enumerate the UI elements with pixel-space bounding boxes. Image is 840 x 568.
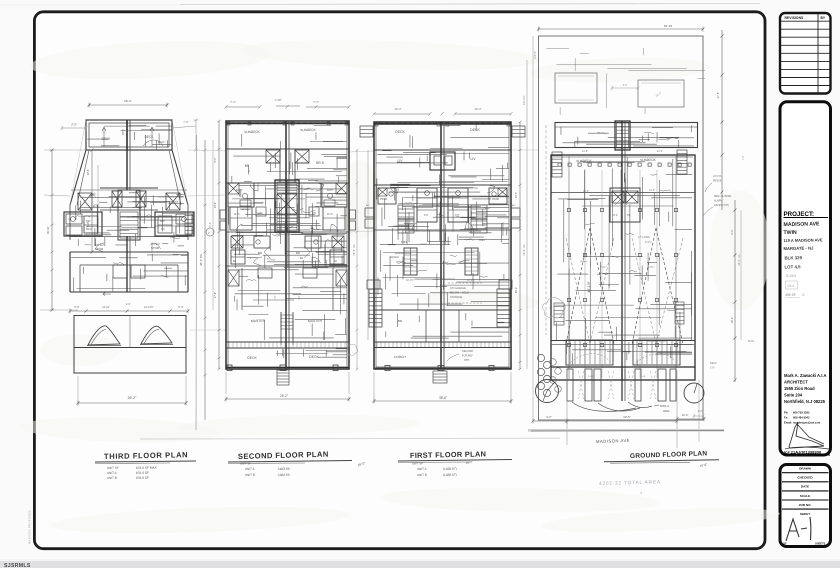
svg-text:SCALE: SCALE bbox=[800, 494, 811, 498]
svg-text:26'-2": 26'-2" bbox=[280, 394, 288, 398]
svg-text:7'-3": 7'-3" bbox=[94, 192, 97, 197]
svg-text:13'-6": 13'-6" bbox=[214, 202, 217, 208]
svg-text:MADISON AVE: MADISON AVE bbox=[783, 221, 820, 228]
svg-text:LOT 4,5: LOT 4,5 bbox=[784, 264, 801, 269]
svg-text:7'-7": 7'-7" bbox=[71, 122, 77, 126]
svg-text:DRAWN: DRAWN bbox=[799, 467, 811, 471]
svg-text:DIN: DIN bbox=[479, 238, 484, 242]
svg-text:9'-6¾": 9'-6¾" bbox=[648, 266, 655, 269]
svg-text:UNIT A: UNIT A bbox=[417, 467, 427, 471]
svg-text:Ph:: Ph: bbox=[784, 411, 788, 415]
svg-text:TWIN: TWIN bbox=[783, 230, 797, 236]
svg-text:Northfield, N.J 08225: Northfield, N.J 08225 bbox=[784, 399, 826, 404]
svg-text:W.I.C: W.I.C bbox=[234, 213, 240, 216]
svg-text:32'-5": 32'-5" bbox=[623, 415, 631, 419]
svg-text:SUNDECK: SUNDECK bbox=[300, 128, 317, 132]
svg-text:UNIT SF: UNIT SF bbox=[240, 461, 251, 465]
svg-text:ARCHITECT: ARCHITECT bbox=[784, 380, 808, 385]
svg-text:W.I.C: W.I.C bbox=[327, 213, 333, 216]
svg-text:1'-6": 1'-6" bbox=[275, 295, 277, 300]
svg-text:DATE: DATE bbox=[801, 485, 809, 489]
svg-text:CHECKED: CHECKED bbox=[797, 476, 813, 480]
svg-text:JOB NO.: JOB NO. bbox=[799, 503, 812, 507]
svg-text:SJSRMLS: SJSRMLS bbox=[4, 563, 31, 568]
svg-text:19'-1½": 19'-1½" bbox=[406, 278, 415, 282]
svg-text:5'-6": 5'-6" bbox=[75, 306, 80, 309]
svg-text:STOR: STOR bbox=[151, 246, 160, 250]
svg-text:14'-6": 14'-6" bbox=[582, 150, 588, 153]
svg-text:C/O GARAGE: C/O GARAGE bbox=[450, 287, 466, 290]
svg-text:FIRST FLOOR PLAN: FIRST FLOOR PLAN bbox=[410, 449, 486, 460]
svg-text:27'-6": 27'-6" bbox=[716, 92, 720, 99]
svg-text:SECOND: SECOND bbox=[462, 349, 473, 353]
svg-text:58'-8" OA: 58'-8" OA bbox=[522, 244, 526, 255]
svg-text:12'-11½": 12'-11½" bbox=[144, 305, 154, 309]
svg-text:UNIT SF: UNIT SF bbox=[107, 466, 119, 470]
svg-text:1'-6": 1'-6" bbox=[698, 410, 703, 413]
svg-text:(1498.67): (1498.67) bbox=[443, 467, 457, 471]
svg-text:5,254: 5,254 bbox=[786, 273, 797, 278]
svg-text:1555 Zion Road: 1555 Zion Road bbox=[784, 386, 815, 391]
svg-text:Lic# 21AJ(0)1338300: Lic# 21AJ(0)1338300 bbox=[782, 450, 822, 455]
svg-text:1'-6": 1'-6" bbox=[710, 367, 715, 370]
svg-text:456 SF: 456 SF bbox=[785, 293, 796, 297]
svg-text:5'-4": 5'-4" bbox=[179, 306, 184, 309]
svg-text:678.8 SF MAX: 678.8 SF MAX bbox=[136, 466, 158, 470]
svg-text:O: O bbox=[802, 293, 805, 297]
svg-text:STORAGE: STORAGE bbox=[450, 296, 463, 299]
svg-text:7'-1": 7'-1" bbox=[230, 100, 236, 104]
svg-text:SUNDECK: SUNDECK bbox=[640, 158, 657, 162]
svg-text:58'-8" OA: 58'-8" OA bbox=[352, 244, 356, 255]
svg-text:6'-0": 6'-0" bbox=[730, 229, 734, 234]
svg-text:2.0 VYL: 2.0 VYL bbox=[713, 175, 723, 178]
svg-text:ALARM: ALARM bbox=[714, 200, 722, 203]
svg-text:BA: BA bbox=[233, 260, 237, 263]
svg-text:17' LOAD: 17' LOAD bbox=[638, 235, 650, 239]
svg-text:DECK: DECK bbox=[710, 362, 717, 365]
svg-text:DIN: DIN bbox=[401, 240, 406, 244]
svg-text:18'-0": 18'-0" bbox=[730, 317, 734, 324]
svg-text:UNIT A: UNIT A bbox=[245, 467, 255, 471]
svg-text:36″H: 36″H bbox=[464, 359, 470, 362]
svg-text:12'-11": 12'-11" bbox=[102, 306, 110, 309]
svg-text:UNIT A: UNIT A bbox=[107, 471, 117, 475]
svg-text:SHEET: SHEET bbox=[800, 512, 810, 516]
svg-text:50'-93: 50'-93 bbox=[664, 24, 673, 28]
svg-text:19'-1½": 19'-1½" bbox=[467, 278, 476, 282]
svg-text:9'x18': 9'x18' bbox=[640, 376, 646, 378]
svg-text:678.0 SF: 678.0 SF bbox=[136, 471, 149, 475]
svg-text:26'-2": 26'-2" bbox=[128, 396, 137, 400]
svg-text:PROJECT:: PROJECT: bbox=[784, 211, 815, 218]
svg-text:7'-10": 7'-10" bbox=[274, 98, 281, 102]
svg-text:BR B: BR B bbox=[316, 161, 323, 165]
svg-text:1'-6": 1'-6" bbox=[299, 295, 301, 300]
svg-text:9'-2": 9'-2" bbox=[214, 157, 217, 162]
svg-text:19-4: 19-4 bbox=[787, 284, 794, 288]
svg-text:DECK: DECK bbox=[247, 356, 257, 360]
svg-text:UNIT SF: UNIT SF bbox=[412, 461, 423, 465]
svg-text:45'-10": 45'-10" bbox=[46, 226, 50, 234]
svg-text:PWDR: PWDR bbox=[380, 199, 387, 201]
svg-text:1486.69: 1486.69 bbox=[278, 473, 290, 477]
svg-text:119 A MADISON AVE: 119 A MADISON AVE bbox=[783, 237, 822, 243]
svg-text:FENCE: FENCE bbox=[713, 180, 722, 183]
svg-text:115'-0½": 115'-0½" bbox=[522, 95, 526, 105]
svg-text:7'-1": 7'-1" bbox=[313, 100, 319, 104]
svg-text:FLR ABV: FLR ABV bbox=[462, 354, 473, 358]
svg-text:PARK-G: PARK-G bbox=[660, 405, 669, 408]
svg-text:PWDR: PWDR bbox=[492, 199, 499, 201]
svg-text:DECK: DECK bbox=[395, 130, 405, 134]
svg-text:PORCH: PORCH bbox=[394, 355, 406, 359]
svg-text:Email:: Email: bbox=[784, 421, 792, 425]
svg-text:70'-6": 70'-6" bbox=[208, 222, 212, 229]
svg-text:Fx:: Fx: bbox=[784, 416, 788, 420]
svg-text:17'-8": 17'-8" bbox=[214, 292, 217, 298]
svg-text:AREA: AREA bbox=[663, 410, 670, 413]
svg-text:1483.69: 1483.69 bbox=[278, 467, 290, 471]
svg-text:SELF CLOSING: SELF CLOSING bbox=[714, 195, 732, 198]
svg-text:48'-4" OA: 48'-4" OA bbox=[199, 254, 203, 266]
svg-text:LIV: LIV bbox=[470, 157, 476, 161]
svg-text:9'-6¾": 9'-6¾" bbox=[600, 266, 607, 269]
svg-text:4: 4 bbox=[640, 491, 642, 495]
svg-text:9'-0": 9'-0" bbox=[623, 85, 628, 87]
svg-text:678.0 SF: 678.0 SF bbox=[136, 476, 149, 480]
svg-text:13'-0": 13'-0" bbox=[682, 413, 689, 417]
svg-text:KIT: KIT bbox=[424, 213, 428, 217]
svg-text:REVISIONS: REVISIONS bbox=[785, 16, 805, 20]
svg-text:18'-6": 18'-6" bbox=[86, 169, 90, 176]
svg-text:GATES (TYP): GATES (TYP) bbox=[714, 204, 729, 207]
svg-text:BY: BY bbox=[821, 16, 826, 20]
svg-text:BLDG: BLDG bbox=[748, 341, 754, 343]
svg-text:38'-6": 38'-6" bbox=[439, 396, 447, 400]
svg-text:O.S.: O.S. bbox=[613, 214, 618, 217]
svg-text:9'-0": 9'-0" bbox=[546, 415, 551, 419]
svg-text:SHEETS: SHEETS bbox=[815, 542, 826, 546]
svg-text:BR: BR bbox=[245, 164, 250, 168]
svg-text:1'-4": 1'-4" bbox=[126, 303, 131, 306]
svg-text:36'-2": 36'-2" bbox=[515, 287, 518, 293]
svg-text:12'-4": 12'-4" bbox=[394, 107, 401, 111]
svg-text:14'-6": 14'-6" bbox=[657, 150, 663, 153]
svg-text:UNIT B: UNIT B bbox=[245, 473, 255, 477]
svg-text:(1486.67): (1486.67) bbox=[443, 473, 457, 477]
svg-text:17'-1": 17'-1" bbox=[584, 250, 587, 256]
svg-text:1'-0": 1'-0" bbox=[743, 155, 745, 160]
svg-text:9'-8": 9'-8" bbox=[86, 221, 90, 226]
svg-text:26'-0": 26'-0" bbox=[124, 99, 132, 103]
svg-text:DECK: DECK bbox=[470, 128, 480, 132]
svg-text:14'-6": 14'-6" bbox=[649, 189, 655, 192]
svg-text:Mark A. Zawacki A.I.A: Mark A. Zawacki A.I.A bbox=[784, 373, 827, 378]
svg-text:12'-4": 12'-4" bbox=[474, 107, 481, 111]
svg-text:UNIT B: UNIT B bbox=[417, 473, 427, 477]
svg-text:9'x18': 9'x18' bbox=[588, 376, 594, 378]
svg-text:5-6: 5-6 bbox=[161, 228, 165, 231]
svg-text:A/C: A/C bbox=[512, 204, 516, 207]
svg-text:22'-0": 22'-0" bbox=[515, 192, 518, 198]
svg-text:UNIT B: UNIT B bbox=[107, 476, 117, 480]
svg-text:FRIG: FRIG bbox=[86, 228, 92, 231]
svg-text:3'-0": 3'-0" bbox=[349, 352, 351, 357]
svg-text:BLK 329: BLK 329 bbox=[784, 255, 802, 260]
svg-text:7'-8": 7'-8" bbox=[183, 120, 189, 124]
svg-text:115'-0": 115'-0" bbox=[533, 51, 537, 59]
svg-text:BA: BA bbox=[334, 260, 338, 263]
svg-text:609 739 3292: 609 739 3292 bbox=[793, 411, 810, 415]
svg-text:98'-0" OA: 98'-0" OA bbox=[737, 254, 741, 265]
svg-text:609 484 9043: 609 484 9043 bbox=[793, 416, 810, 420]
svg-text:DECK: DECK bbox=[145, 135, 155, 139]
svg-text:MARGATE - NJ: MARGATE - NJ bbox=[783, 245, 814, 251]
svg-text:14'-6": 14'-6" bbox=[583, 190, 589, 193]
svg-text:SUNDECK: SUNDECK bbox=[244, 130, 261, 134]
svg-text:Suite 204: Suite 204 bbox=[784, 393, 803, 398]
svg-text:6'-6½": 6'-6½" bbox=[645, 240, 652, 244]
svg-text:OF: OF bbox=[783, 542, 787, 546]
svg-text:BATH: BATH bbox=[327, 189, 333, 192]
svg-text:THIRD FLOOR PLAN: THIRD FLOOR PLAN bbox=[104, 450, 188, 461]
svg-text:MADISON PROPOSED: MADISON PROPOSED bbox=[28, 510, 32, 544]
svg-text:MASTER: MASTER bbox=[251, 319, 266, 323]
